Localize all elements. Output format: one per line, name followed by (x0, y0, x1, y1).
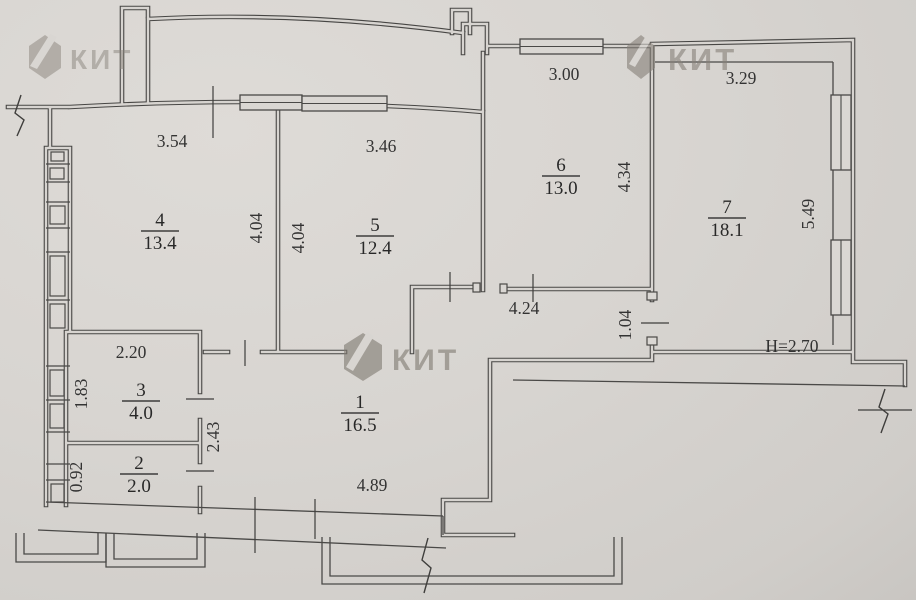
room-4-area: 13.4 (143, 233, 177, 254)
dim-hall-bottom-width: 4.89 (357, 475, 388, 495)
room-5-label: 5 12.4 (356, 215, 394, 259)
room-6-label: 6 13.0 (542, 155, 580, 199)
break-symbol-left (15, 95, 24, 136)
room-2-label: 2 2.0 (120, 453, 158, 497)
room-1-label: 1 16.5 (341, 392, 379, 436)
kit-watermark-top-left: КИТ (29, 34, 133, 79)
room-2-area: 2.0 (127, 476, 151, 497)
dim-room7-depth: 5.49 (798, 198, 818, 229)
kit-logo-text: КИТ (392, 344, 459, 377)
window-room6 (520, 39, 603, 54)
break-symbol-bottom (422, 538, 431, 593)
dim-room3-width: 2.20 (116, 342, 147, 362)
dimension-ticks (186, 86, 912, 553)
room-4-number: 4 (155, 210, 165, 231)
dim-room3-depth: 1.83 (71, 378, 91, 409)
kit-watermark-center: КИТ (344, 332, 459, 381)
room-7-area: 18.1 (710, 220, 743, 241)
room-2-number: 2 (134, 453, 144, 474)
dim-room5-depth: 4.04 (288, 222, 308, 253)
thin-lines (16, 62, 905, 584)
window-room7-upper (831, 95, 851, 170)
dim-room6-width: 3.00 (549, 64, 580, 84)
kit-logo-icon (29, 35, 61, 79)
dimension-labels: 3.54 3.46 3.00 3.29 4.04 4.04 4.34 5.49 … (66, 64, 819, 495)
room-6-number: 6 (556, 155, 566, 176)
room-3-label: 3 4.0 (122, 380, 160, 424)
window-room4 (240, 95, 302, 110)
window-room5 (302, 96, 387, 111)
window-room7-lower (831, 240, 851, 315)
dim-room6-depth: 4.34 (614, 161, 634, 192)
floor-plan-drawing: КИТ КИТ КИТ 1 16.5 2 2.0 3 4.0 4 13.4 (0, 0, 916, 600)
dim-room5-width: 3.46 (366, 136, 397, 156)
dim-room4-depth: 4.04 (246, 212, 266, 243)
room-1-area: 16.5 (343, 415, 376, 436)
windows (240, 39, 851, 315)
dim-room4-width: 3.54 (157, 131, 188, 151)
dim-room7-width: 3.29 (726, 68, 757, 88)
room-5-area: 12.4 (358, 238, 392, 259)
room-3-area: 4.0 (129, 403, 153, 424)
room-7-label: 7 18.1 (708, 197, 746, 241)
dim-ceiling-height: H=2.70 (765, 336, 818, 356)
room-5-number: 5 (370, 215, 380, 236)
dim-hall-left-depth: 2.43 (203, 421, 223, 452)
room-7-number: 7 (722, 197, 732, 218)
break-symbol-right (879, 389, 888, 433)
dim-room2-depth: 0.92 (66, 462, 86, 493)
floor-plan-scan: КИТ КИТ КИТ 1 16.5 2 2.0 3 4.0 4 13.4 (0, 0, 916, 600)
room-3-number: 3 (136, 380, 146, 401)
dim-room7-door: 1.04 (615, 309, 635, 340)
room-6-area: 13.0 (544, 178, 577, 199)
kit-logo-text: КИТ (70, 44, 133, 75)
dim-hall-top-width: 4.24 (509, 298, 540, 318)
room-1-number: 1 (355, 392, 365, 413)
room-4-label: 4 13.4 (141, 210, 179, 254)
